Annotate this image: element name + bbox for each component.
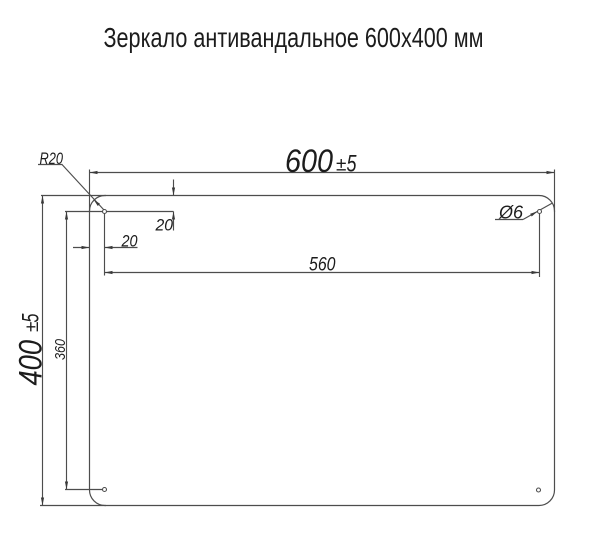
svg-text:360: 360 [53,339,69,360]
svg-text:5: 5 [347,151,357,178]
svg-text:5: 5 [18,313,45,322]
svg-text:20: 20 [121,232,138,251]
svg-text:R20: R20 [40,150,64,168]
svg-text:600: 600 [285,143,333,179]
svg-text:Зеркало антивандальное 600x400: Зеркало антивандальное 600x400 мм [104,22,484,53]
svg-text:560: 560 [309,255,336,276]
svg-text:400: 400 [13,340,49,386]
svg-text:20: 20 [155,216,174,235]
svg-text:±: ± [336,155,346,176]
